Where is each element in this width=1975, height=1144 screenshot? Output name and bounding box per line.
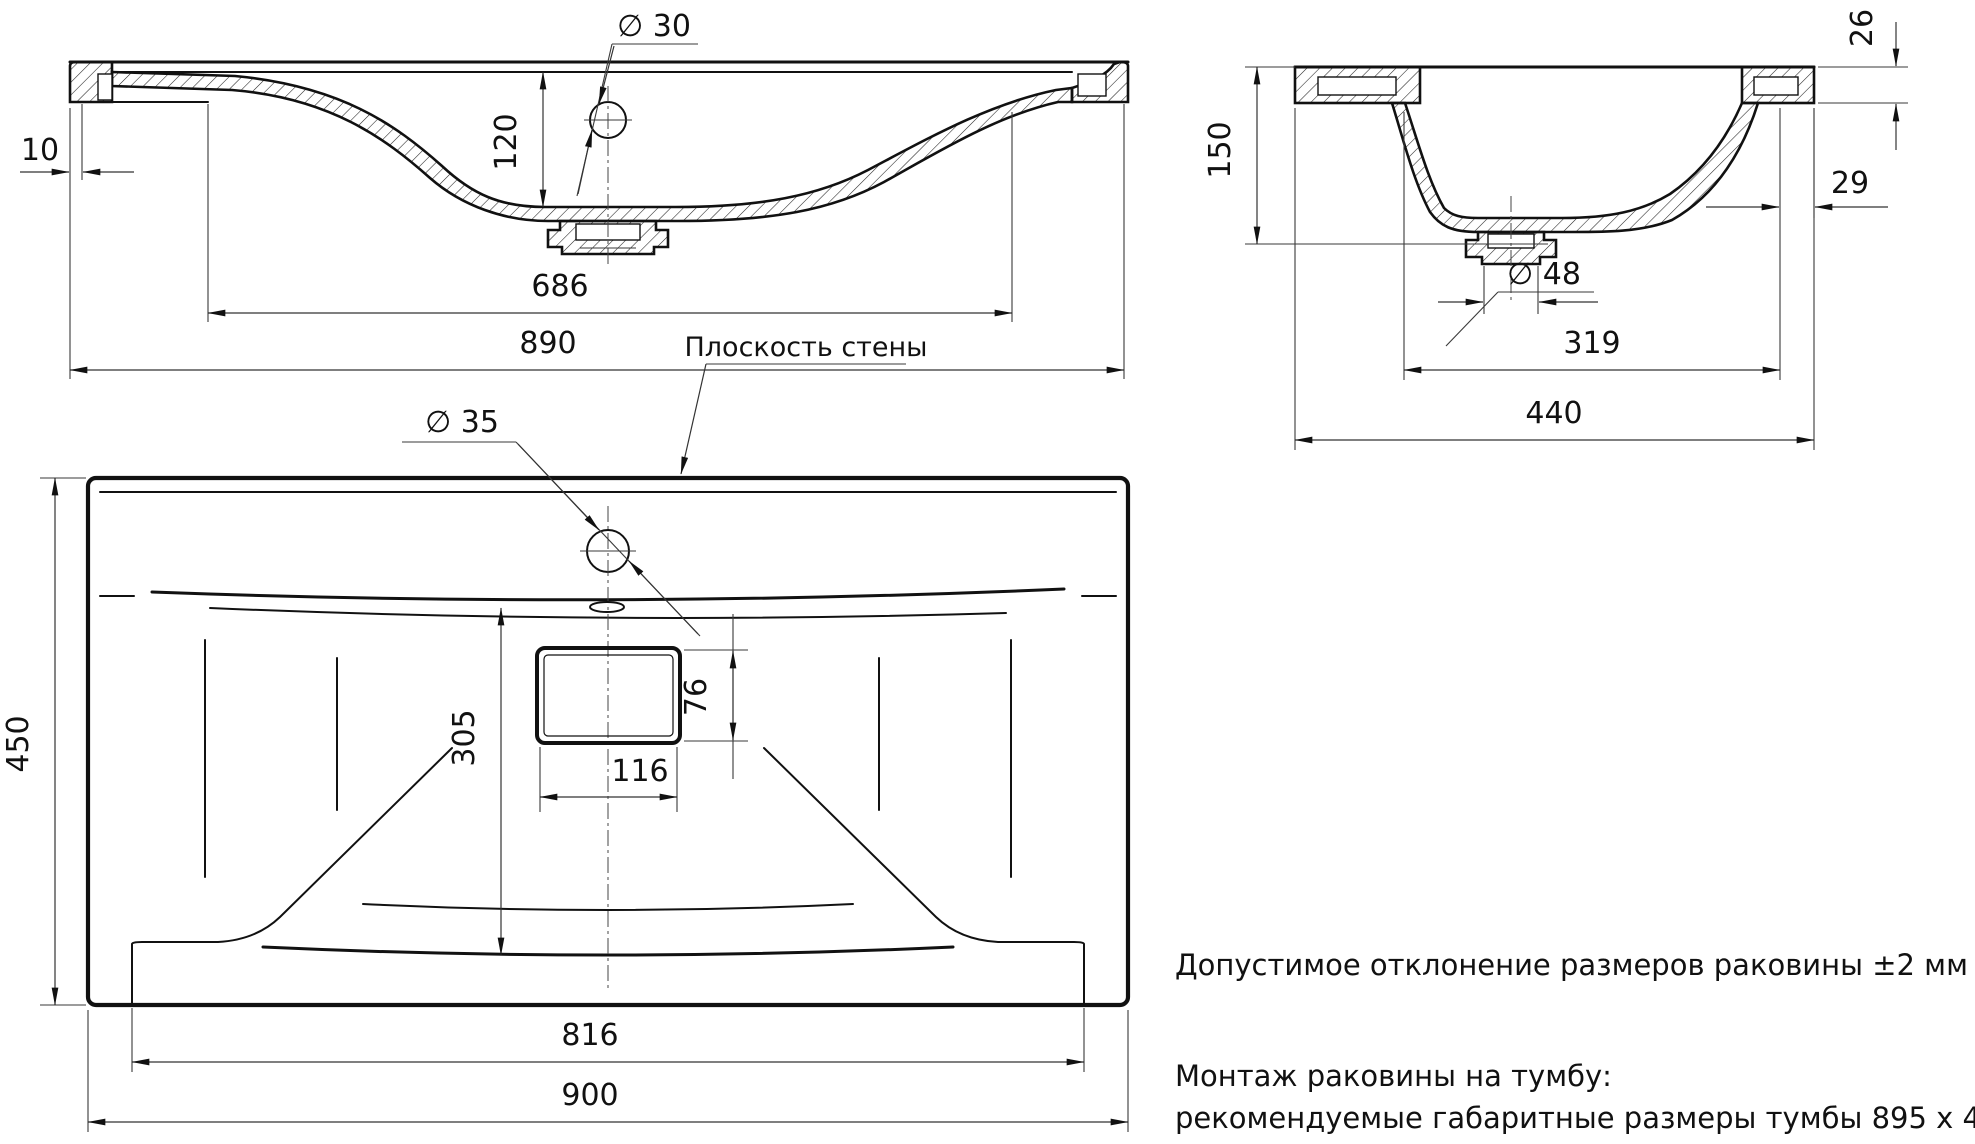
washbasin-technical-drawing: ∅ 30 10 120 686 890	[0, 0, 1975, 1144]
plan-drain-offset-dim: 305	[447, 709, 482, 766]
notes-block: Допустимое отклонение размеров раковины …	[1175, 948, 1975, 1135]
note-mount-detail: рекомендуемые габаритные размеры тумбы 8…	[1175, 1101, 1975, 1135]
plan-bottom-right-contour	[764, 748, 1084, 1003]
plan-bottom-left-contour	[132, 748, 452, 1003]
side-rear-rim-notch	[1318, 77, 1396, 95]
plan-drain-width-dim: 116	[611, 754, 668, 789]
front-left-rim-notch	[98, 74, 112, 100]
side-basin-width-dim: 319	[1563, 326, 1620, 361]
side-drain-leader-line	[1446, 292, 1498, 346]
plan-hole-arrow-top	[518, 444, 599, 530]
side-depth-dim: 150	[1203, 121, 1238, 178]
drawing-sheet: ∅ 30 10 120 686 890	[0, 0, 1975, 1144]
front-basin-width-dim: 686	[531, 269, 588, 304]
side-front-rim-notch	[1754, 77, 1798, 95]
note-tolerance: Допустимое отклонение размеров раковины …	[1175, 948, 1968, 982]
front-height-dim: 120	[489, 113, 524, 170]
plan-hole-dia-label: ∅ 35	[425, 405, 499, 440]
plan-overflow-slot	[590, 602, 624, 612]
front-offset-dim: 10	[21, 133, 59, 168]
plan-view: ∅ 35 Плоскость стены 305 76 116 450	[1, 332, 1128, 1132]
front-hole-arrow-bottom	[578, 130, 592, 194]
side-drain-dia-label: ∅ 48	[1507, 257, 1581, 292]
plan-hole-arrow-bottom	[629, 561, 698, 634]
plan-wall-plane-leader	[681, 364, 706, 474]
side-bowl-wall-section	[1392, 103, 1758, 232]
front-hole-arrow-top	[599, 46, 614, 104]
front-width-dim: 890	[519, 326, 576, 361]
side-apron-dim: 26	[1845, 9, 1880, 47]
plan-width-dim: 900	[561, 1078, 618, 1113]
side-edge-dim: 29	[1831, 166, 1869, 201]
plan-depth-dim: 450	[1, 715, 36, 772]
plan-drain-height-dim: 76	[679, 678, 714, 716]
plan-wall-plane-label: Плоскость стены	[685, 332, 928, 363]
front-hole-dia-label: ∅ 30	[617, 9, 691, 44]
front-right-rim-notch	[1078, 74, 1106, 96]
plan-basin-width-dim: 816	[561, 1018, 618, 1053]
front-basin-wall-section	[112, 72, 1072, 221]
side-width-dim: 440	[1525, 396, 1582, 431]
front-section-view: ∅ 30 10 120 686 890	[20, 9, 1128, 379]
note-mount-title: Монтаж раковины на тумбу:	[1175, 1059, 1612, 1093]
side-section-view: 150 26 29 ∅ 48 319 440	[1203, 9, 1908, 450]
